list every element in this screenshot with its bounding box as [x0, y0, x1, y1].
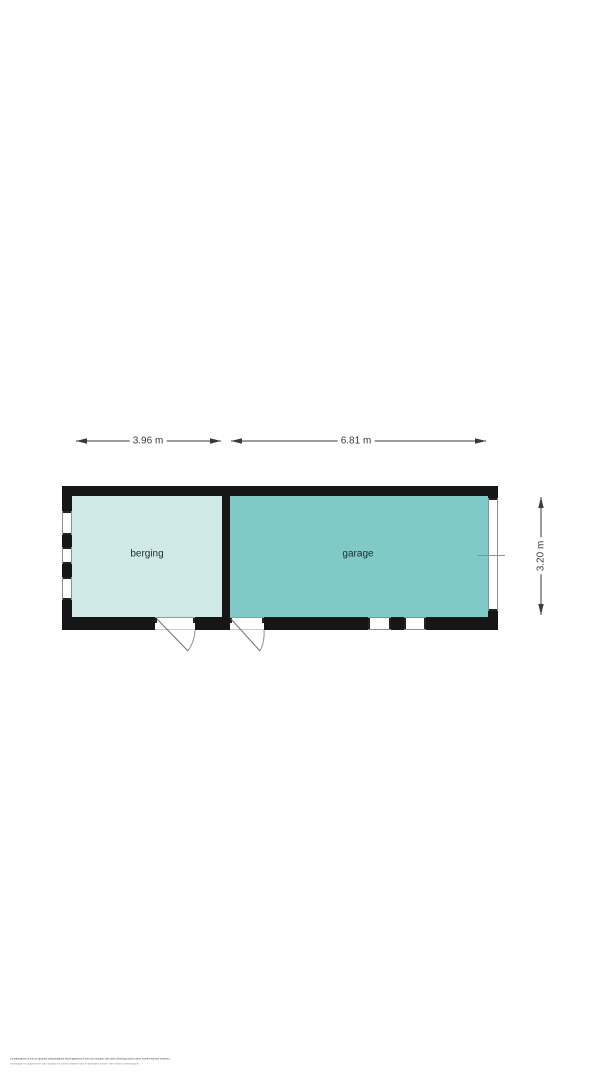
window-bottom-2-icon: [404, 617, 426, 630]
arrow-right-icon: [210, 438, 221, 443]
window-left-1-icon: [62, 511, 72, 535]
dimension-label-right: 3.20 m: [536, 538, 547, 575]
disclaimer-microtext-line2: Afmetingen en oppervlakten zijn indicati…: [10, 1063, 140, 1066]
door-berging-swing-icon: [188, 630, 195, 651]
window-left-2-icon: [62, 547, 72, 564]
arrow-down-icon: [538, 604, 543, 615]
dimension-label-top-left: 3.96 m: [130, 436, 167, 447]
window-bottom-1-icon: [368, 617, 391, 630]
window-right-icon: [488, 498, 498, 611]
dimension-label-top-right: 6.81 m: [338, 436, 375, 447]
room-label-garage: garage: [342, 549, 373, 560]
floorplan-page: berging garage 3.96 m 6.81 m 3.20 m De p…: [0, 0, 608, 1080]
wall-bottom: [62, 617, 498, 630]
disclaimer-microtext-line1: De plattegrond is met de grootste zorgvu…: [10, 1058, 170, 1061]
arrow-right-icon: [475, 438, 486, 443]
door-garage-threshold: [230, 617, 264, 630]
door-berging-threshold: [155, 617, 195, 630]
arrow-up-icon: [538, 497, 543, 508]
room-label-berging: berging: [130, 549, 163, 560]
window-left-3-icon: [62, 577, 72, 600]
arrow-left-icon: [231, 438, 242, 443]
door-garage-swing-icon: [260, 630, 264, 651]
arrow-left-icon: [76, 438, 87, 443]
wall-top: [62, 486, 498, 496]
wall-divider: [222, 486, 230, 630]
